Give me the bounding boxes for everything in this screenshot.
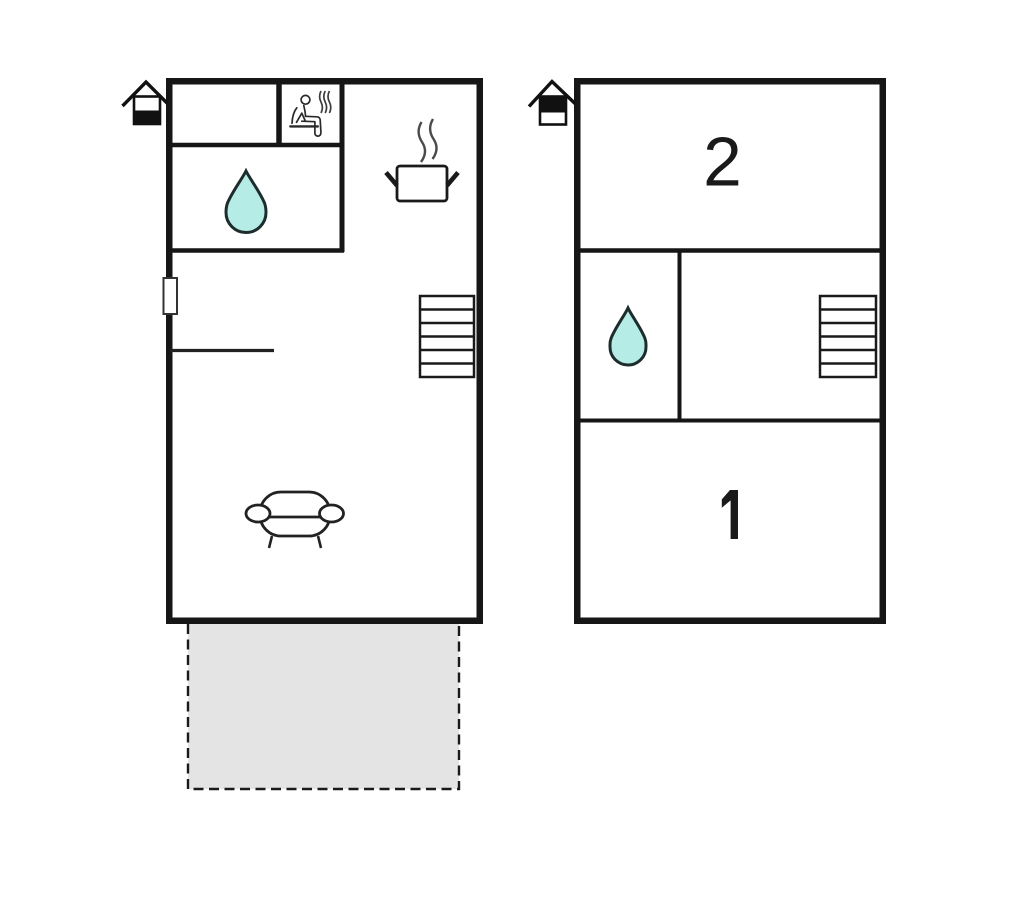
svg-text:2: 2 xyxy=(703,123,742,201)
